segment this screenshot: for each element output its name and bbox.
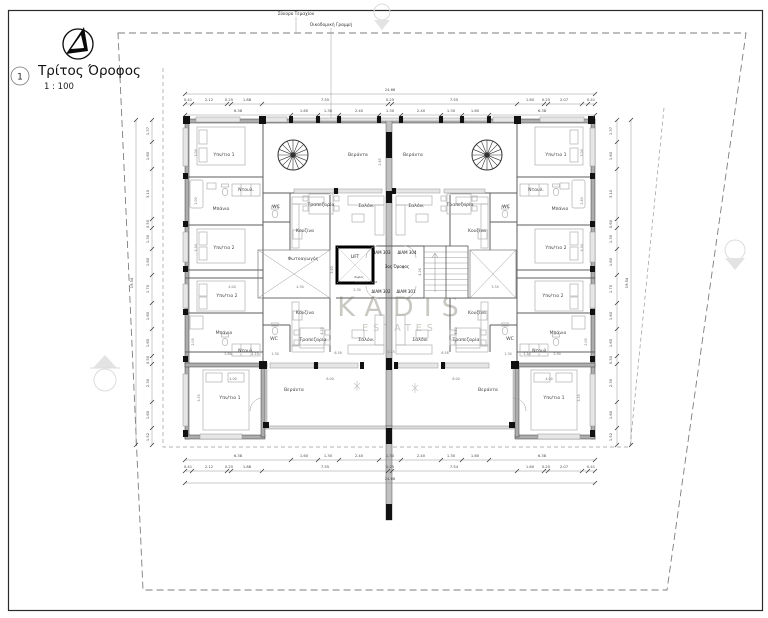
dimension-label: 2.05 (584, 338, 588, 345)
dimension-label: 3.30 (580, 244, 584, 251)
dimension-label: 1.37 (609, 126, 613, 135)
dimension-label: 1.30 (447, 454, 456, 458)
dimension-label: 3.00 (580, 149, 584, 156)
dimension-label: 1.52 (146, 433, 150, 441)
room-label: WC (506, 336, 514, 342)
room-label: Βεράντα (348, 151, 368, 158)
dimension-label: 1.60 (146, 311, 150, 320)
room-label: Υπν/τιο 2 (544, 245, 566, 251)
dimension-label: 2.07 (560, 98, 569, 102)
dimension-label: 1.60 (609, 410, 613, 419)
dimension-label: 2.07 (560, 465, 569, 469)
room-label: Υπν/τιο 1 (542, 395, 564, 401)
dimension-label: 0.60 (609, 219, 613, 228)
dimension-label: 2.30 (353, 288, 360, 292)
dimension-label: 1.65 (609, 338, 613, 347)
room-label: Υπν/τιο 1 (212, 152, 234, 158)
room-label: Ντουλ. (528, 187, 544, 193)
room-label: Υπν/τιο 1 (218, 395, 240, 401)
dimension-label: 1.60 (609, 151, 613, 160)
dimension-label: 0.25 (386, 98, 395, 102)
room-label: Βεράντα (478, 386, 498, 393)
room-label: Κουζίνα (468, 309, 486, 316)
dimension-label: 3.10 (146, 189, 150, 198)
dimension-label: 1.65 (146, 338, 150, 347)
room-label: WC (270, 336, 278, 342)
dimension-label: 7.55 (321, 465, 330, 469)
dimension-label: 1.60 (471, 454, 480, 458)
room-label: Τραπεζαρία (306, 201, 334, 208)
dimension-label: 1.88 (243, 98, 252, 102)
apt-303-label: ΔΙΑΜ 303 (371, 250, 390, 255)
dimension-label: 1.30 (504, 352, 511, 356)
room-label: Βεράντα (284, 386, 304, 393)
dimension-label: 19.54 (625, 277, 629, 288)
room-label: Υπν/τιο 1 (544, 152, 566, 158)
title-block: 1 Τρίτος Όροφος 1 : 100 (11, 63, 141, 92)
dimension-label: 7.55 (321, 98, 330, 102)
dimension-label: 2.12 (205, 98, 213, 102)
dimension-label: 2.90 (553, 352, 560, 356)
dimension-label: 7.54 (450, 465, 459, 469)
dimension-label: 1.52 (609, 433, 613, 441)
dimension-label: 6.38 (234, 454, 243, 458)
dimension-label: 4.26 (418, 268, 422, 275)
dimension-label: 2.40 (417, 109, 426, 113)
dimension-label: 3.00 (194, 149, 198, 156)
section-marker-left-icon (90, 355, 120, 391)
dimension-label: 2.40 (417, 454, 426, 458)
dimension-label: 4.00 (545, 377, 552, 381)
dimension-label: 6.38 (538, 109, 547, 113)
room-label: Σαλόνι (408, 202, 424, 209)
dimension-label: 2.30 (609, 378, 613, 387)
dimension-label: 0.50 (146, 355, 150, 364)
dimension-label: 6.58 (441, 351, 448, 355)
dimension-label: 1.60 (609, 311, 613, 320)
dimension-label: 4.20 (454, 327, 458, 334)
dimension-label: 0.25 (225, 98, 234, 102)
dimension-label: 1.60 (146, 151, 150, 160)
dimension-label: 3.10 (609, 189, 613, 198)
dimension-label: 1.30 (386, 454, 395, 458)
plot-boundary-label: Σύνορο Τεμαχίου (278, 10, 315, 17)
dimension-label: 0.25 (542, 98, 551, 102)
dimension-label: 1.60 (526, 98, 535, 102)
dimension-label: 1.60 (471, 109, 480, 113)
room-label: Τραπεζαρία (451, 336, 479, 343)
room-label: WC (272, 204, 280, 210)
dimension-label: 1.60 (609, 257, 613, 266)
room-label: Βεράντα (403, 151, 423, 158)
dimension-label: 0.41 (184, 98, 192, 102)
dimension-label: 24.66 (385, 477, 396, 481)
dimension-label: 8.00 (326, 377, 333, 381)
labels: Υπν/τιο 1Ντουλ.ΜπάνιοΥπν/τιο 2WCΚουζίναΤ… (130, 88, 629, 481)
dimension-label: 1.30 (146, 234, 150, 243)
dimension-label: 0.25 (387, 350, 394, 354)
dimension-label: 0.50 (609, 355, 613, 364)
dimension-label: 3.40 (330, 266, 334, 273)
room-label: Κουζίνα (468, 227, 486, 234)
dimension-label: 1.30 (609, 234, 613, 243)
room-label: WC (502, 204, 510, 210)
room-label: Φωτοαγωγός (288, 255, 319, 262)
page-title: Τρίτος Όροφος (37, 63, 141, 79)
dimension-label: 2.40 (355, 109, 364, 113)
room-label: Κουζίνα (296, 309, 314, 316)
dimension-label: 0.25 (225, 465, 234, 469)
apt-304-label: ΔΙΑΜ 304 (397, 250, 416, 255)
dimension-label: 6.38 (234, 109, 243, 113)
dimension-label: 8.00 (452, 377, 459, 381)
watermark-sub: ESTATES (362, 323, 438, 334)
dimension-label: 3.34 (491, 285, 498, 289)
dimension-label: 2.05 (191, 338, 195, 345)
room-label: Υπν/τιο 2 (212, 245, 234, 251)
apt-301-label: ΔΙΑΜ 301 (396, 289, 415, 294)
room-label: Σαλόνι (358, 202, 374, 209)
view-number: 1 (17, 73, 23, 83)
dimension-label: 2.00 (194, 197, 198, 204)
dimension-label: 1.30 (324, 109, 333, 113)
room-label: Σαλόνι (358, 336, 374, 343)
dimension-label: 2.80 (224, 352, 231, 356)
dimension-label: 0.41 (587, 465, 595, 469)
floor-plan-drawing: Σύνορο Τεμαχίου Οικοδομική Γραμμή 1 Τρίτ… (0, 0, 768, 618)
stairs (424, 246, 468, 298)
dimension-label: 3.30 (194, 244, 198, 251)
dimension-label: 1.30 (324, 454, 333, 458)
dimension-label: 2.85 (378, 158, 382, 165)
dimension-label: 3.55 (197, 394, 201, 401)
dimension-label: 2.40 (355, 454, 364, 458)
dimension-label: 2.12 (205, 465, 213, 469)
building-line (163, 68, 664, 447)
dimension-label: 1.70 (609, 284, 613, 293)
dimension-label: 7.55 (450, 98, 459, 102)
apt-302-label: ΔΙΑΜ 302 (371, 289, 390, 294)
drawing-scale: 1 : 100 (44, 82, 74, 92)
dimension-label: 1.70 (146, 284, 150, 293)
dimension-label: 1.60 (300, 109, 309, 113)
room-label: Κουζίνα (296, 227, 314, 234)
dimension-label: 6.38 (538, 454, 547, 458)
dimension-label: 1.30 (386, 109, 395, 113)
room-label: Ντουλ. (238, 187, 254, 193)
dimension-label: 1.60 (300, 454, 309, 458)
section-marker-right-icon (725, 240, 745, 270)
dimension-label: 0.50 (146, 219, 150, 228)
drawing-sheet: Σύνορο Τεμαχίου Οικοδομική Γραμμή 1 Τρίτ… (0, 0, 768, 618)
room-label: Υπν/τιο 2 (215, 293, 237, 299)
section-marker-top-icon (374, 4, 390, 30)
dimension-label: 1.60 (526, 465, 535, 469)
dimension-label: 1.10 (523, 352, 530, 356)
room-label: Μπάνιο (213, 205, 230, 212)
dimension-label: 3.55 (577, 394, 581, 401)
room-label: Τραπεζαρία (445, 201, 473, 208)
dimension-label: 1.30 (271, 352, 278, 356)
lift-label: LIFT (351, 254, 360, 259)
dimension-label: 1.60 (146, 257, 150, 266)
dimension-label: 0.41 (184, 465, 192, 469)
dimension-label: 1.30 (447, 109, 456, 113)
dimension-label: 1.88 (243, 465, 252, 469)
dimension-label: 4.20 (320, 327, 324, 334)
dimension-label: 1.60 (146, 410, 150, 419)
dimension-label: 1.37 (146, 126, 150, 135)
dimension-label: 0.41 (587, 98, 595, 102)
amea-label-2: αναμονής ΑΜΕΑ (355, 280, 378, 284)
dimension-label: 4.00 (229, 377, 236, 381)
room-label: Σαλόνι (412, 336, 428, 343)
room-label: Ντουλ. (532, 348, 548, 354)
floor-plan: LIFT (183, 116, 595, 520)
building-line-label: Οικοδομική Γραμμή (310, 21, 352, 28)
north-arrow-icon (63, 27, 93, 59)
dimension-label: 2.30 (146, 378, 150, 387)
dimension-label: 4.00 (228, 285, 235, 289)
dimension-label: 6.58 (334, 351, 341, 355)
dimension-label: 0.25 (386, 465, 395, 469)
dimension-label: 0.25 (542, 465, 551, 469)
room-label: Τραπεζαρία (298, 336, 326, 343)
amea-label-1: Χώρος (354, 275, 364, 279)
dimension-label: 4.30 (296, 285, 303, 289)
room-label: Μπάνιο (552, 205, 569, 212)
dimension-label: 1.10 (251, 352, 258, 356)
floor-note: 3ος Όροφος (385, 264, 409, 269)
room-label: Μπάνιο (216, 329, 233, 336)
dimension-label: 2.40 (580, 197, 584, 204)
room-label: Μπάνιο (550, 329, 567, 336)
dimension-label: 19.54 (130, 277, 134, 288)
dimension-label: 24.66 (385, 88, 396, 92)
room-label: Υπν/τιο 2 (541, 293, 563, 299)
